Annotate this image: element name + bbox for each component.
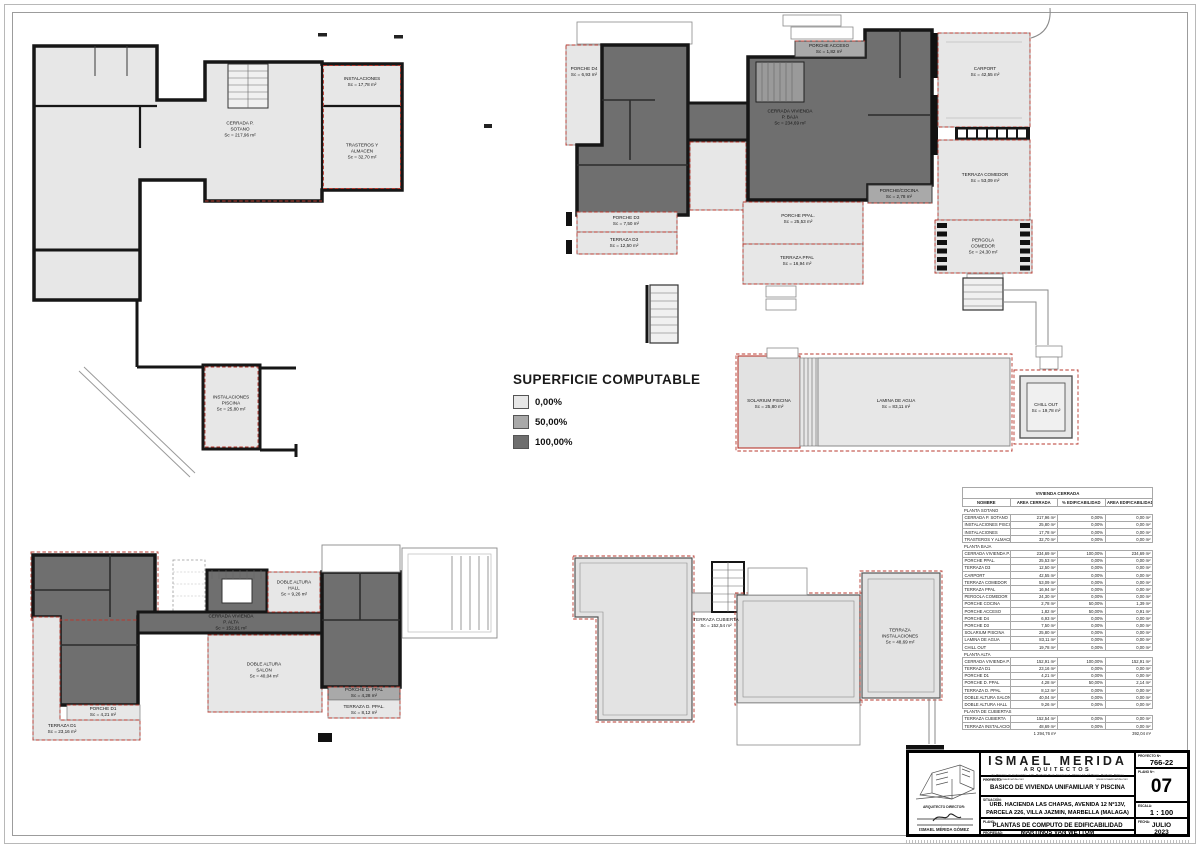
date-cell: FECHA: JULIO 2023 [1135,818,1188,835]
sheet-number-cell: PLANO Nº: 07 [1135,768,1188,802]
room-label: PORCHE D1Sc = 4,21 m² [90,706,117,718]
legend-item: 100,00% [513,435,700,449]
room-label: DOBLE ALTURA HALLSc = 9,26 m² [277,580,311,599]
room-label: PORCHE/COCINASc = 2,78 m² [880,188,919,200]
cell-pct: 0,00% [1058,593,1106,600]
table-total-row: 1 294,76 m²392,04 m² [963,730,1153,737]
cell-name: PORCHE D3 [963,622,1011,629]
cell-pct: 50,00% [1058,608,1106,615]
cell-name: CHILL OUT [963,643,1011,650]
room-area: Sc = 23,16 m² [48,729,77,735]
cell-name: TERRAZA CUBIERTA [963,715,1011,722]
cell-name: PORCHE D. PPAL [963,679,1011,686]
cell-name: TERRAZA D. PPAL [963,687,1011,694]
situation-line1: URB. HACIENDA LAS CHAPAS, AVENIDA 12 Nº1… [981,802,1134,808]
table-title: VIVIENDA CERRADA [963,488,1153,499]
cell-name: TERRAZA D3 [963,564,1011,571]
cell-edif: 0,91 m² [1105,608,1153,615]
section-name: PLANTA DE CUBIERTAS [963,708,1153,715]
legend-label: 100,00% [535,437,573,448]
signature [915,810,975,828]
legend-swatch-50pct [513,415,529,429]
section-name: PLANTA SOTANO [963,507,1153,514]
cell-area: 25,80 m² [1010,629,1058,636]
room-label: PORCHE D4Sc = 6,93 m² [571,66,598,78]
cell-area: 152,54 m² [1010,715,1058,722]
cell-pct: 0,00% [1058,579,1106,586]
legend-item: 0,00% [513,395,700,409]
sheet-title: PLANTAS DE COMPUTO DE EDIFICABILIDAD [981,823,1134,829]
scale-value: 1 : 100 [1136,808,1187,817]
table-title-row: VIVIENDA CERRADA [963,488,1153,499]
room-name: TERRAZA INSTALACIONES [882,628,918,640]
room-label: INSTALACIONESSc = 17,78 m² [344,76,380,88]
table-row: PERGOLA COMEDOR24,30 m²0,00%0,00 m² [963,593,1153,600]
cell-edif: 1,39 m² [1105,600,1153,607]
cell-area: 9,26 m² [1010,701,1058,708]
cell-name: PORCHE D1 [963,672,1011,679]
room-area: Sc = 24,30 m² [969,250,998,256]
room-name: CERRADA VIVIENDA P. ALTA [209,614,254,626]
total-area-cerrada: 1 294,76 m² [1010,730,1058,737]
room-label: TERRAZA D3Sc = 12,50 m² [610,237,639,249]
room-area: Sc = 19,78 m² [1032,408,1061,414]
col-area-cerrada: AREA CERRADA [1010,499,1058,507]
situation-cell: SITUACIÓN: URB. HACIENDA LAS CHAPAS, AVE… [980,796,1135,818]
table-row: TERRAZA D312,50 m²0,00%0,00 m² [963,564,1153,571]
cell-edif: 0,00 m² [1105,665,1153,672]
date-year: 2023 [1136,829,1187,836]
cell-pct: 0,00% [1058,521,1106,528]
room-name: DOBLE ALTURA SALON [247,662,281,674]
cell-name: CARPORT [963,572,1011,579]
col-pct-edificabilidad: % EDIFICABILIDAD [1058,499,1106,507]
table-section-row: PLANTA DE CUBIERTAS [963,708,1153,715]
room-area: Sc = 4,21 m² [90,712,117,718]
room-label: CERRADA P. SOTANOSc = 217,96 m² [224,121,255,140]
cell-name: TERRAZA D1 [963,665,1011,672]
cell-pct: 0,00% [1058,701,1106,708]
cell-edif: 0,00 m² [1105,572,1153,579]
cell-area: 16,94 m² [1010,586,1058,593]
cell-edif: 234,69 m² [1105,550,1153,557]
cell-area: 7,50 m² [1010,622,1058,629]
cell-name: TERRAZA COMEDOR [963,579,1011,586]
room-label: PORCHE PPAL.Sc = 25,53 m² [781,213,815,225]
architect-director-label: ARQUITECTO DIRECTOR: [909,805,979,809]
col-area-edificabilidad: AREA EDIFICABILIDAD [1105,499,1153,507]
table-row: TERRAZA INSTALACIONES48,69 m²0,00%0,00 m… [963,723,1153,730]
cell-area: 6,93 m² [1010,615,1058,622]
project-cell: PROYECTO: BASICO DE VIVIENDA UNIFAMILIAR… [980,776,1135,796]
architect-cell: ARQUITECTO DIRECTOR: ISMAEL MÉRIDA GÓMEZ [908,752,980,835]
table-header-row: NOMBRE AREA CERRADA % EDIFICABILIDAD ARE… [963,499,1153,507]
situation-line2: PARCELA 226, VILLA JAZMIN, MARBELLA (MAL… [981,810,1134,816]
cell-name: LAMINA DE AGUA [963,636,1011,643]
room-label: PORCHE D. PPALSc = 4,28 m² [345,687,383,699]
cell-pct: 0,00% [1058,687,1106,694]
room-label: TERRAZA D1Sc = 23,16 m² [48,723,77,735]
room-label: CARPORTSc = 42,55 m² [971,66,1000,78]
firm-name: ISMAEL MERIDA [981,754,1134,768]
cell-area: 152,91 m² [1010,658,1058,665]
cell-area: 40,04 m² [1010,694,1058,701]
col-nombre: NOMBRE [963,499,1011,507]
cell-edif: 0,00 m² [1105,564,1153,571]
room-area: Sc = 4,28 m² [345,693,383,699]
room-area: Sc = 217,96 m² [224,133,255,139]
table-row: PORCHE D. PPAL4,28 m²50,00%2,14 m² [963,679,1153,686]
title-block: ARQUITECTO DIRECTOR: ISMAEL MÉRIDA GÓMEZ… [906,750,1190,837]
cell-edif: 0,00 m² [1105,557,1153,564]
room-area: Sc = 234,69 m² [768,121,813,127]
cell-edif: 0,00 m² [1105,701,1153,708]
cell-name: PORCHE ACCESO [963,608,1011,615]
cell-pct: 0,00% [1058,672,1106,679]
table-row: PORCHE D37,50 m²0,00%0,00 m² [963,622,1153,629]
cell-area: 19,78 m² [1010,643,1058,650]
room-label: CERRADA VIVIENDA P. BAJASc = 234,69 m² [768,109,813,128]
room-area: Sc = 25,53 m² [781,219,815,225]
room-area: Sc = 40,04 m² [247,674,281,680]
cell-pct: 0,00% [1058,694,1106,701]
room-name: TRASTEROS Y ALMACEN [346,143,378,155]
owner-name: MARTINUS VAN WETTUM [981,830,1134,836]
table-row: CERRADA P. SOTANO217,96 m²0,00%0,00 m² [963,514,1153,521]
plan-sotano [34,33,492,477]
legend-label: 0,00% [535,397,562,408]
cell-pct: 0,00% [1058,615,1106,622]
cell-name: CERRADA VIVIENDA P. ALTA [963,658,1011,665]
table-row: PORCHE D46,93 m²0,00%0,00 m² [963,615,1153,622]
cell-pct: 50,00% [1058,679,1106,686]
room-label: PORCHE D3Sc = 7,50 m² [613,215,640,227]
room-label: CERRADA VIVIENDA P. ALTASc = 152,91 m² [209,614,254,633]
room-label: TERRAZA CUBIERTASc = 152,54 m² [693,617,738,629]
cell-edif: 0,00 m² [1105,615,1153,622]
cell-pct: 0,00% [1058,636,1106,643]
cell-name: DOBLE ALTURA HALL [963,701,1011,708]
room-label: SOLARIUM PISCINASc = 25,80 m² [747,398,791,410]
room-label: CHILL OUTSc = 19,78 m² [1032,402,1061,414]
cell-area: 32,70 m² [1010,536,1058,543]
total-spacer [1058,730,1106,737]
cell-area: 1,82 m² [1010,608,1058,615]
table-row: INSTALACIONES17,78 m²0,00%0,00 m² [963,528,1153,535]
room-label: TRASTEROS Y ALMACENSc = 32,70 m² [346,143,378,162]
cell-edif: 152,91 m² [1105,658,1153,665]
room-area: Sc = 8,12 m² [343,710,384,716]
cell-name: PORCHE COCINA [963,600,1011,607]
table-row: PORCHE ACCESO1,82 m²50,00%0,91 m² [963,608,1153,615]
cell-name: PORCHE D4 [963,615,1011,622]
firm-logo-sketch [912,755,978,803]
cell-pct: 0,00% [1058,572,1106,579]
cell-edif: 0,00 m² [1105,636,1153,643]
edificability-table: VIVIENDA CERRADA NOMBRE AREA CERRADA % E… [962,487,1153,736]
total-area-edificabilidad: 392,04 m² [1105,730,1153,737]
room-area: Sc = 2,78 m² [880,194,919,200]
plan-cubierta [573,556,944,750]
room-area: Sc = 48,69 m² [882,640,918,646]
room-label: TERRAZA INSTALACIONESSc = 48,69 m² [882,628,918,647]
cell-pct: 0,00% [1058,622,1106,629]
fine-print-strip [906,840,1190,843]
cell-pct: 50,00% [1058,600,1106,607]
cell-name: INSTALACIONES [963,528,1011,535]
section-name: PLANTA ALTA [963,651,1153,658]
legend-swatch-0pct [513,395,529,409]
project-number-cell: PROYECTO Nº: 766-22 [1135,752,1188,768]
cell-edif: 0,00 m² [1105,723,1153,730]
cell-name: CERRADA VIVIENDA P. BAJA [963,550,1011,557]
cell-edif: 0,00 m² [1105,593,1153,600]
room-area: Sc = 152,91 m² [209,626,254,632]
cell-edif: 0,00 m² [1105,694,1153,701]
cell-area: 83,11 m² [1010,636,1058,643]
cell-edif: 0,00 m² [1105,579,1153,586]
room-area: Sc = 12,50 m² [610,243,639,249]
edificability-table-body: PLANTA SOTANOCERRADA P. SOTANO217,96 m²0… [963,507,1153,737]
room-name: CERRADA P. SOTANO [224,121,255,133]
table-row: PORCHE PPAL.25,53 m²0,00%0,00 m² [963,557,1153,564]
table-row: TERRAZA D. PPAL8,12 m²0,00%0,00 m² [963,687,1153,694]
cell-name: DOBLE ALTURA SALON [963,694,1011,701]
section-name: PLANTA BAJA [963,543,1153,550]
room-area: Sc = 53,09 m² [962,178,1008,184]
room-area: Sc = 83,11 m² [877,404,916,410]
project-label: PROYECTO: [983,778,1002,782]
legend: SUPERFICIE COMPUTABLE 0,00% 50,00% 100,0… [513,372,700,455]
cell-name: INSTALACIONES PISCINA [963,521,1011,528]
cell-area: 12,50 m² [1010,564,1058,571]
cell-area: 2,78 m² [1010,600,1058,607]
room-label: PORCHE ACCESOSc = 1,82 m² [809,43,849,55]
table-row: CERRADA VIVIENDA P. BAJA234,69 m²100,00%… [963,550,1153,557]
legend-label: 50,00% [535,417,567,428]
room-area: Sc = 42,55 m² [971,72,1000,78]
cell-pct: 0,00% [1058,715,1106,722]
cell-pct: 0,00% [1058,643,1106,650]
date-month: JULIO [1136,822,1187,829]
sheet-number-label: PLANO Nº: [1138,770,1155,774]
owner-cell: PROPIEDAD: MARTINUS VAN WETTUM [980,830,1135,835]
room-area: Sc = 25,80 m² [213,407,249,413]
table-section-row: PLANTA SOTANO [963,507,1153,514]
table-row: PORCHE COCINA2,78 m²50,00%1,39 m² [963,600,1153,607]
cell-edif: 0,00 m² [1105,528,1153,535]
cell-pct: 0,00% [1058,586,1106,593]
cell-name: PORCHE PPAL. [963,557,1011,564]
firm-header-cell: ISMAEL MERIDA ARQUITECTOS Av. Príncipe d… [980,752,1135,776]
cell-name: CERRADA P. SOTANO [963,514,1011,521]
cell-name: PERGOLA COMEDOR [963,593,1011,600]
table-row: TRASTEROS Y ALMACEN32,70 m²0,00%0,00 m² [963,536,1153,543]
table-row: DOBLE ALTURA SALON40,04 m²0,00%0,00 m² [963,694,1153,701]
room-area: Sc = 9,26 m² [277,592,311,598]
cell-area: 25,53 m² [1010,557,1058,564]
room-label: LAMINA DE AGUASc = 83,11 m² [877,398,916,410]
room-area: Sc = 1,82 m² [809,49,849,55]
cell-area: 53,09 m² [1010,579,1058,586]
table-row: DOBLE ALTURA HALL9,26 m²0,00%0,00 m² [963,701,1153,708]
sheet-title-cell: PLANO: PLANTAS DE COMPUTO DE EDIFICABILI… [980,818,1135,830]
cell-edif: 0,00 m² [1105,715,1153,722]
cell-edif: 0,00 m² [1105,672,1153,679]
cell-pct: 0,00% [1058,665,1106,672]
cell-edif: 0,00 m² [1105,586,1153,593]
cell-area: 17,78 m² [1010,528,1058,535]
table-row: PORCHE D14,21 m²0,00%0,00 m² [963,672,1153,679]
cell-edif: 0,00 m² [1105,629,1153,636]
architect-name: ISMAEL MÉRIDA GÓMEZ [909,827,979,832]
room-area: Sc = 17,78 m² [344,82,380,88]
room-area: Sc = 16,94 m² [780,261,814,267]
room-label: TERRAZA D. PPAL.Sc = 8,12 m² [343,704,384,716]
cell-pct: 0,00% [1058,536,1106,543]
cell-area: 8,12 m² [1010,687,1058,694]
cell-pct: 100,00% [1058,658,1106,665]
cell-edif: 0,00 m² [1105,622,1153,629]
room-label: TERRAZA COMEDORSc = 53,09 m² [962,172,1008,184]
table-section-row: PLANTA ALTA [963,651,1153,658]
cell-area: 48,69 m² [1010,723,1058,730]
table-row: INSTALACIONES PISCINA25,80 m²0,00%0,00 m… [963,521,1153,528]
table-row: CERRADA VIVIENDA P. ALTA152,91 m²100,00%… [963,658,1153,665]
table-row: TERRAZA PPAL16,94 m²0,00%0,00 m² [963,586,1153,593]
cell-edif: 2,14 m² [1105,679,1153,686]
room-area: Sc = 25,80 m² [747,404,791,410]
room-area: Sc = 152,54 m² [693,623,738,629]
table-row: CHILL OUT19,78 m²0,00%0,00 m² [963,643,1153,650]
table-row: TERRAZA CUBIERTA152,54 m²0,00%0,00 m² [963,715,1153,722]
cell-area: 4,21 m² [1010,672,1058,679]
room-label: TERRAZA PPALSc = 16,94 m² [780,255,814,267]
cell-name: TERRAZA PPAL [963,586,1011,593]
drawing-sheet: INSTALACIONESSc = 17,78 m² CERRADA P. SO… [0,0,1200,848]
room-label: PERGOLA COMEDORSc = 24,30 m² [969,238,998,257]
cell-pct: 0,00% [1058,557,1106,564]
room-area: Sc = 32,70 m² [346,155,378,161]
room-area: Sc = 7,50 m² [613,221,640,227]
cell-area: 42,55 m² [1010,572,1058,579]
cell-edif: 0,00 m² [1105,514,1153,521]
cell-area: 234,69 m² [1010,550,1058,557]
legend-swatch-100pct [513,435,529,449]
room-name: PERGOLA COMEDOR [969,238,998,250]
cell-name: TERRAZA INSTALACIONES [963,723,1011,730]
cell-pct: 0,00% [1058,514,1106,521]
cell-pct: 0,00% [1058,528,1106,535]
room-name: DOBLE ALTURA HALL [277,580,311,592]
legend-title: SUPERFICIE COMPUTABLE [513,372,700,387]
cell-area: 23,16 m² [1010,665,1058,672]
room-label: INSTALACIONES PISCINASc = 25,80 m² [213,395,249,414]
table-row: LAMINA DE AGUA83,11 m²0,00%0,00 m² [963,636,1153,643]
table-row: TERRAZA D123,16 m²0,00%0,00 m² [963,665,1153,672]
cell-edif: 0,00 m² [1105,687,1153,694]
room-name: INSTALACIONES PISCINA [213,395,249,407]
table-row: SOLARIUM PISCINA25,80 m²0,00%0,00 m² [963,629,1153,636]
cell-edif: 0,00 m² [1105,643,1153,650]
room-area: Sc = 6,93 m² [571,72,598,78]
table-row: TERRAZA COMEDOR53,09 m²0,00%0,00 m² [963,579,1153,586]
sheet-number: 07 [1136,776,1187,798]
cell-edif: 0,00 m² [1105,536,1153,543]
table-row: CARPORT42,55 m²0,00%0,00 m² [963,572,1153,579]
cell-pct: 0,00% [1058,723,1106,730]
cell-edif: 0,00 m² [1105,521,1153,528]
cell-area: 25,80 m² [1010,521,1058,528]
cell-name: TRASTEROS Y ALMACEN [963,536,1011,543]
cell-area: 217,96 m² [1010,514,1058,521]
table-section-row: PLANTA BAJA [963,543,1153,550]
cell-pct: 100,00% [1058,550,1106,557]
project-title: BASICO DE VIVIENDA UNIFAMILIAR Y PISCINA [981,785,1134,791]
scale-cell: ESCALA: 1 : 100 [1135,802,1188,818]
room-name: CERRADA VIVIENDA P. BAJA [768,109,813,121]
total-spacer [963,730,1011,737]
cell-area: 24,30 m² [1010,593,1058,600]
cell-area: 4,28 m² [1010,679,1058,686]
cell-pct: 0,00% [1058,564,1106,571]
cell-name: SOLARIUM PISCINA [963,629,1011,636]
cell-pct: 0,00% [1058,629,1106,636]
project-number: 766-22 [1136,758,1187,767]
room-label: DOBLE ALTURA SALONSc = 40,04 m² [247,662,281,681]
legend-item: 50,00% [513,415,700,429]
